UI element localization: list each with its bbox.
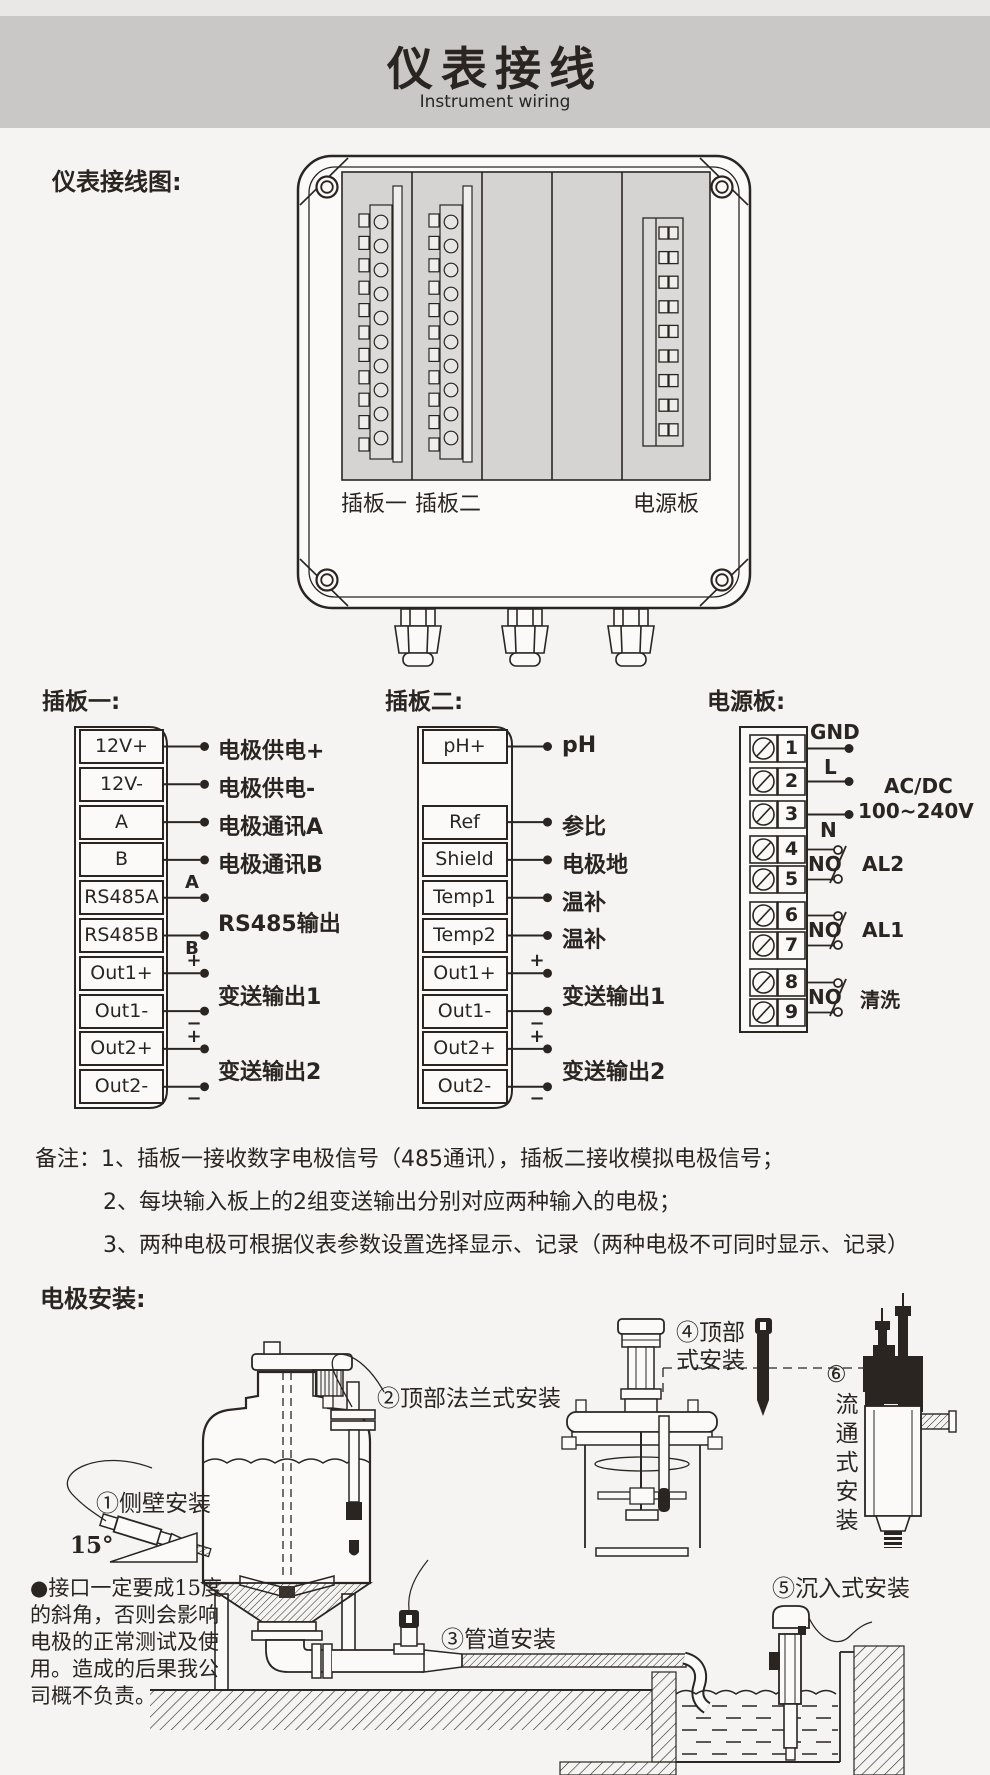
relay-no-label: NO	[808, 985, 842, 1009]
terminal-label: Temp2	[423, 919, 506, 952]
warning-line-2: 的斜角，否则会影响	[30, 1599, 219, 1629]
wire-mark: −	[526, 1088, 548, 1109]
wire-label: 温补	[562, 885, 606, 917]
terminal-label: 12V+	[80, 730, 163, 763]
group-label-out2: 变送输出2	[562, 1054, 665, 1086]
terminal-label: pH+	[423, 730, 506, 763]
relay-no-label: NO	[808, 852, 842, 876]
wire-label: 电极供电+	[218, 733, 324, 765]
method-label-flow-number: ⑥	[826, 1362, 847, 1388]
terminal-number: 9	[778, 999, 805, 1026]
terminal-label: Temp1	[423, 881, 506, 914]
terminal-number: 1	[778, 735, 805, 762]
terminal-label: B	[80, 843, 163, 876]
note-line-2: 2、每块输入板上的2组变送输出分别对应两种输入的电极；	[103, 1184, 681, 1216]
group-label-out2: 变送输出2	[218, 1054, 321, 1086]
panel-tag-board1: 插板一	[341, 486, 407, 518]
group-label-rs485: RS485输出	[218, 906, 341, 938]
terminal-number: 7	[778, 932, 805, 959]
terminal-label: Out2+	[423, 1032, 506, 1065]
terminal-number: 3	[778, 801, 805, 828]
terminal-label: Out1-	[423, 995, 506, 1028]
top-strip	[0, 0, 990, 16]
install-section-label: 电极安装:	[40, 1279, 146, 1314]
note-line-1: 备注：1、插板一接收数字电极信号（485通讯），插板二接收模拟电极信号；	[35, 1141, 784, 1173]
board2-title: 插板二:	[385, 682, 463, 716]
cable-gland	[608, 609, 654, 666]
method-label-top-flange: ②顶部法兰式安装	[377, 1379, 561, 1413]
wire-mark: +	[526, 950, 548, 971]
wire-mark: +	[183, 950, 205, 971]
note-line-3: 3、两种电极可根据仪表参数设置选择显示、记录（两种电极不可同时显示、记录）	[103, 1227, 909, 1259]
power-title: 电源板:	[707, 682, 785, 716]
neutral-label: N	[820, 818, 837, 842]
panel-tag-board2: 插板二	[415, 486, 481, 518]
terminal-label: RS485B	[80, 919, 163, 952]
angle-label: 15°	[70, 1532, 114, 1559]
install-scene	[67, 1293, 956, 1775]
terminal-label: Out1-	[80, 995, 163, 1028]
terminal-label: Ref	[423, 806, 506, 839]
terminal-label: Out2+	[80, 1032, 163, 1065]
wire-mark: +	[183, 1026, 205, 1047]
warning-line-1: ●接口一定要成15度	[30, 1572, 222, 1602]
group-label-out1: 变送输出1	[562, 979, 665, 1011]
panel-tag-power: 电源板	[633, 486, 699, 518]
warning-line-3: 电极的正常测试及使	[30, 1626, 219, 1656]
board1-title: 插板一:	[42, 682, 120, 716]
terminal-label: Shield	[423, 843, 506, 876]
warning-line-5: 司概不负责。	[30, 1680, 156, 1710]
electrode-probe	[755, 1318, 772, 1416]
terminal-number: 8	[778, 969, 805, 996]
flow-cell	[863, 1293, 956, 1548]
gnd-label: GND	[810, 720, 860, 744]
wire-label: 电极地	[562, 847, 628, 879]
relay-label-al2: AL2	[862, 852, 904, 876]
wire-mark: −	[183, 1088, 205, 1109]
wire-label: 电极通讯B	[218, 847, 323, 879]
terminal-number: 5	[778, 866, 805, 893]
cable-gland	[502, 609, 548, 666]
wire-label: 电极通讯A	[218, 809, 323, 841]
terminal-label: Out2-	[80, 1070, 163, 1103]
voltage-label: 100~240V	[858, 799, 974, 823]
wiring-diagram-label: 仪表接线图:	[52, 162, 182, 197]
line-label: L	[824, 755, 837, 779]
terminal-label: RS485A	[80, 881, 163, 914]
acdc-label: AC/DC	[884, 774, 953, 798]
method-label-immersion: ⑤沉入式安装	[772, 1569, 910, 1603]
relay-label-al1: AL1	[862, 918, 904, 942]
wire-label: 电极供电-	[218, 771, 315, 803]
terminal-number: 6	[778, 902, 805, 929]
terminal-number: 2	[778, 768, 805, 795]
method-label-flow-vertical: 流通式安装	[827, 1392, 861, 1532]
terminal-label: 12V-	[80, 768, 163, 801]
terminal-label: A	[80, 806, 163, 839]
page-subtitle: Instrument wiring	[0, 92, 990, 112]
method-label-top-line2: 式安装	[676, 1341, 745, 1375]
terminal-label: Out1+	[80, 957, 163, 990]
relay-label-clean: 清洗	[860, 984, 900, 1013]
method-label-pipe: ③管道安装	[441, 1620, 556, 1654]
terminal-number: 4	[778, 836, 805, 863]
page-title: 仪表接线	[0, 33, 990, 99]
page: 仪表接线 Instrument wiring 仪表接线图: 插板一 插板二 电源…	[0, 0, 990, 1775]
pipe-elbow	[266, 1640, 332, 1672]
wire-label: 参比	[562, 809, 606, 841]
wire-label: 温补	[562, 922, 606, 954]
wire-mark: +	[526, 1026, 548, 1047]
cable-gland	[395, 609, 441, 666]
tank-top-plate	[252, 1354, 352, 1370]
power-strip	[643, 218, 683, 446]
relay-no-label: NO	[808, 918, 842, 942]
group-label-out1: 变送输出1	[218, 979, 321, 1011]
wire-mark: A	[181, 872, 203, 893]
wire-label: pH	[562, 733, 596, 758]
terminal-label: Out1+	[423, 957, 506, 990]
warning-line-4: 用。造成的后果我公	[30, 1653, 219, 1683]
pipe-electrode	[394, 1560, 428, 1654]
terminal-label: Out2-	[423, 1070, 506, 1103]
method-label-side-wall: ①侧壁安装	[96, 1484, 211, 1518]
